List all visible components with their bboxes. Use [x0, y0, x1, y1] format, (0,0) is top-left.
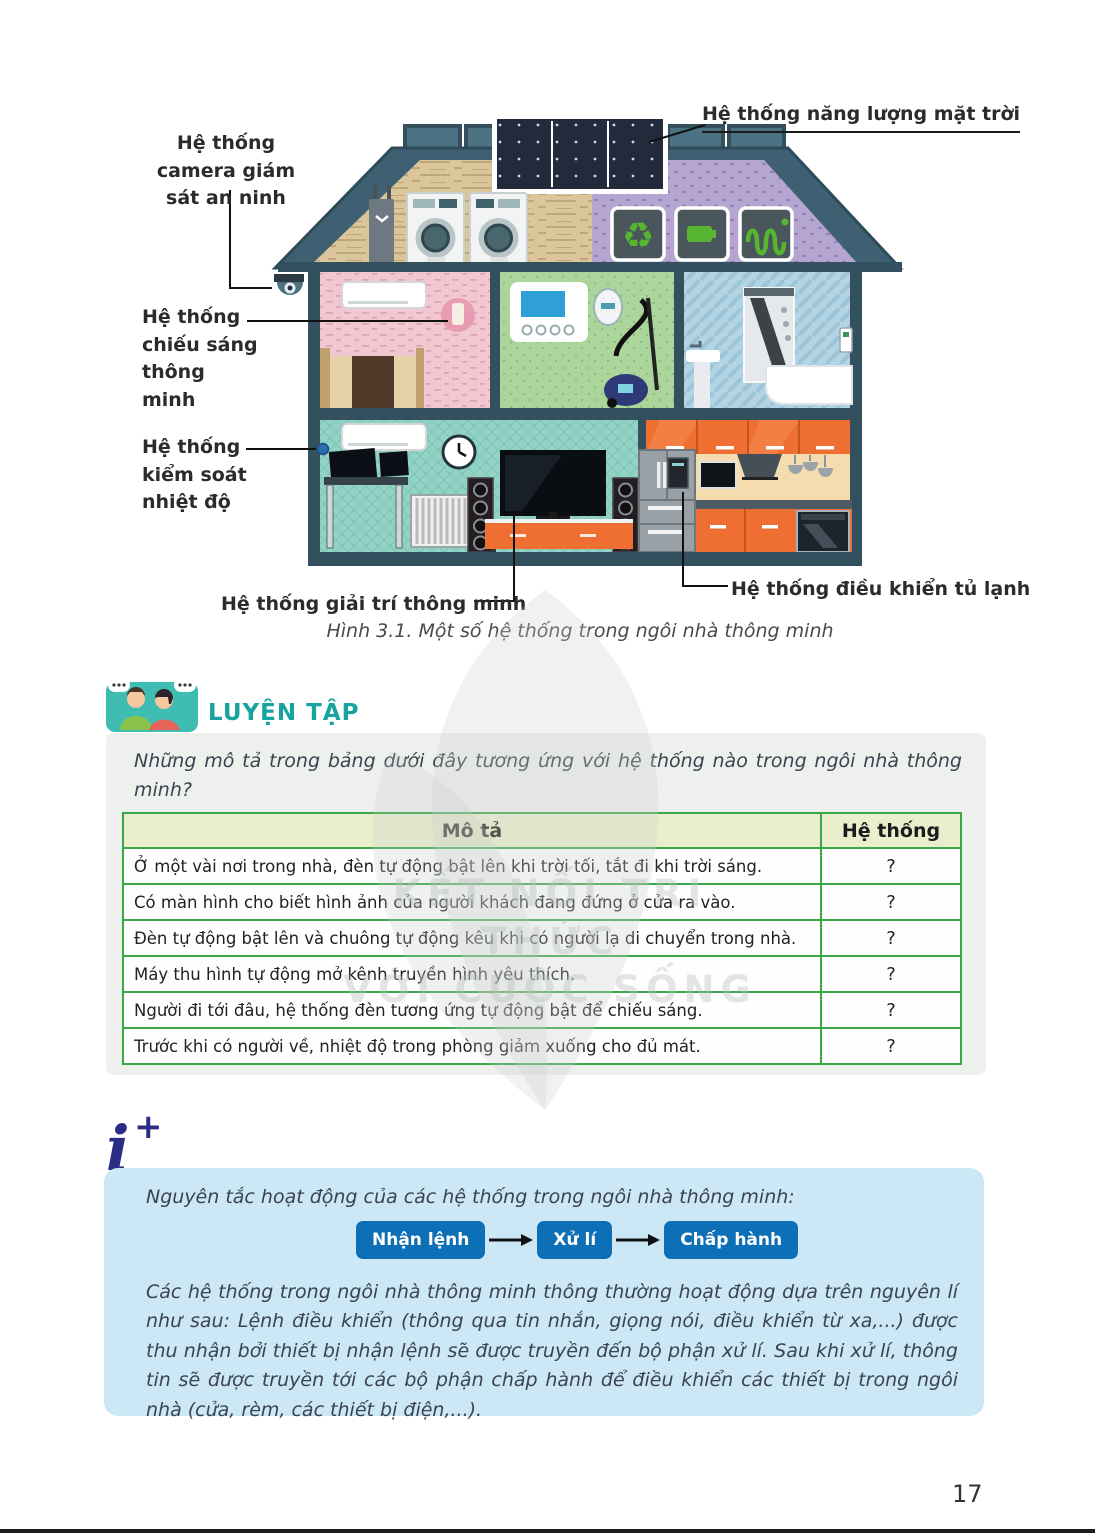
living-room	[320, 420, 638, 553]
practice-question: Những mô tả trong bảng dưới đây tương ứn…	[134, 747, 962, 806]
solar-panel	[492, 114, 668, 194]
info-intro-text: Nguyên tắc hoạt động của các hệ thống tr…	[146, 1186, 946, 1208]
page-number: 17	[952, 1480, 983, 1508]
flow-step-execute: Chấp hành	[664, 1221, 798, 1259]
battery-icon	[676, 208, 728, 260]
label-fridge-system: Hệ thống điều khiển tủ lạnh	[731, 576, 1030, 604]
table-row: Máy thu hình tự động mở kênh truyền hình…	[123, 956, 961, 992]
washing-machine	[470, 193, 527, 265]
bedroom	[320, 272, 490, 408]
utility-room	[500, 272, 674, 408]
attic-floor	[278, 262, 902, 272]
column-header-description: Mô tả	[123, 813, 821, 848]
label-solar-system: Hệ thống năng lượng mặt trời	[702, 101, 1020, 133]
radiator	[411, 495, 469, 547]
svg-text:i: i	[106, 1114, 130, 1176]
table-header-row: Mô tả Hệ thống	[123, 813, 961, 848]
bathroom	[684, 272, 852, 408]
flow-arrow-icon	[489, 1233, 533, 1247]
table-row: Đèn tự động bật lên và chuông tự động kê…	[123, 920, 961, 956]
table-row: Có màn hình cho biết hình ảnh của người …	[123, 884, 961, 920]
wall-clock	[443, 436, 475, 468]
answer-cell: ?	[821, 848, 961, 884]
svg-text:♻: ♻	[622, 216, 654, 257]
answer-cell: ?	[821, 956, 961, 992]
washing-machine	[407, 193, 464, 265]
description-cell: Có màn hình cho biết hình ảnh của người …	[123, 884, 821, 920]
flow-step-process: Xử lí	[537, 1221, 612, 1259]
description-cell: Trước khi có người về, nhiệt độ trong ph…	[123, 1028, 821, 1064]
tv-cabinet	[485, 519, 633, 553]
page-bottom-rule	[0, 1529, 1095, 1533]
flow-arrow-icon	[616, 1233, 660, 1247]
table-row: Trước khi có người về, nhiệt độ trong ph…	[123, 1028, 961, 1064]
air-conditioner	[342, 424, 426, 450]
table-row: Người đi tới đâu, hệ thống đèn tương ứng…	[123, 992, 961, 1028]
foundation	[308, 552, 862, 566]
smart-fridge	[639, 450, 695, 552]
description-cell: Người đi tới đâu, hệ thống đèn tương ứng…	[123, 992, 821, 1028]
answer-cell: ?	[821, 992, 961, 1028]
description-cell: Máy thu hình tự động mở kênh truyền hình…	[123, 956, 821, 992]
practice-section-heading: LUYỆN TẬP	[208, 700, 359, 726]
table-row: Ở một vài nơi trong nhà, đèn tự động bật…	[123, 848, 961, 884]
smart-tv	[500, 450, 606, 521]
fridge-control-panel	[668, 458, 688, 488]
kitchen	[639, 420, 852, 552]
students-talking-icon	[106, 678, 198, 732]
dishwasher	[797, 511, 849, 552]
kitchen-tv	[700, 462, 736, 488]
label-temperature-system: Hệ thống kiểm soát nhiệt độ	[142, 434, 254, 517]
label-camera-system: Hệ thống camera giám sát an ninh	[140, 130, 312, 213]
flow-step-receive: Nhận lệnh	[356, 1221, 485, 1259]
description-cell: Đèn tự động bật lên và chuông tự động kê…	[123, 920, 821, 956]
label-lighting-system: Hệ thống chiếu sáng thông minh	[142, 304, 260, 414]
column-header-system: Hệ thống	[821, 813, 961, 848]
security-camera	[274, 274, 304, 295]
heating-coil-icon	[740, 208, 792, 260]
label-entertainment-system: Hệ thống giải trí thông minh	[221, 591, 526, 619]
practice-table: Mô tả Hệ thống Ở một vài nơi trong nhà, …	[122, 812, 962, 1065]
description-cell: Ở một vài nơi trong nhà, đèn tự động bật…	[123, 848, 821, 884]
operation-flow-diagram: Nhận lệnh Xử lí Chấp hành	[356, 1221, 798, 1259]
smart-home-illustration: ♻	[220, 95, 980, 615]
figure-caption: Hình 3.1. Một số hệ thống trong ngôi nhà…	[280, 620, 880, 642]
floor-divider	[308, 408, 862, 420]
answer-cell: ?	[821, 920, 961, 956]
info-plus-icon: i +	[102, 1114, 168, 1176]
recycle-icon: ♻	[612, 208, 664, 260]
thermostat-panel	[510, 282, 588, 342]
countertop	[692, 500, 852, 509]
info-body-text: Các hệ thống trong ngôi nhà thông minh t…	[146, 1278, 958, 1425]
svg-text:+: +	[134, 1114, 163, 1147]
answer-cell: ?	[821, 884, 961, 920]
upper-cabinets	[646, 420, 850, 454]
bathtub	[766, 366, 852, 404]
answer-cell: ?	[821, 1028, 961, 1064]
temperature-sensor	[318, 444, 329, 455]
